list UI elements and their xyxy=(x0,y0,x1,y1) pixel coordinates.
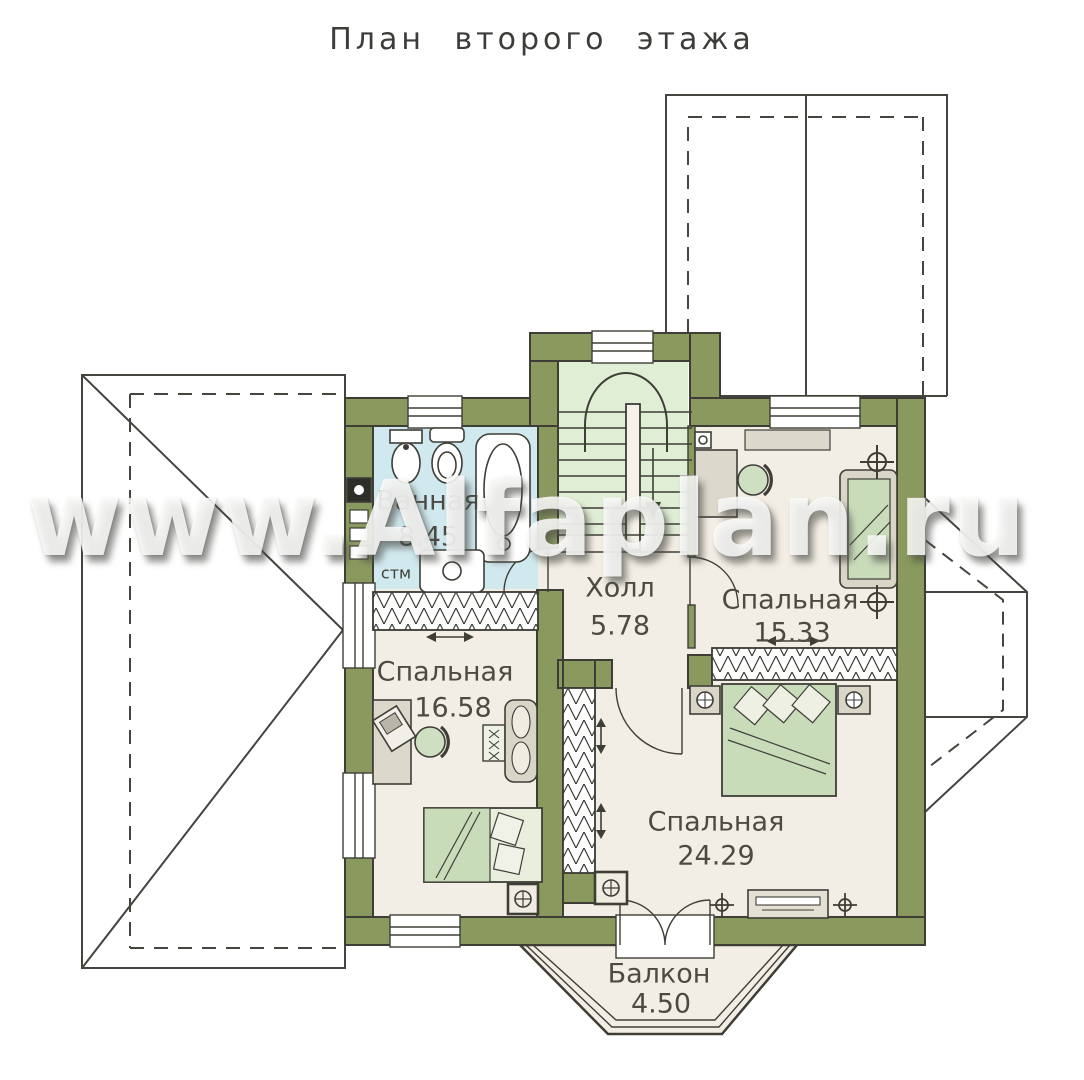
balcony-door-threshold xyxy=(616,915,714,958)
toilet xyxy=(430,428,464,483)
left-roof-outline xyxy=(82,375,345,968)
wardrobe-bathroom-south xyxy=(373,592,538,630)
right-bay-roof-outline xyxy=(925,498,1027,812)
nightstand-right xyxy=(838,686,870,714)
wardrobe-bedroom-big-top xyxy=(712,648,897,680)
stair-floor xyxy=(558,361,688,535)
room-area-hall: 5.78 xyxy=(590,613,650,640)
room-name-hall: Холл xyxy=(585,575,655,602)
right-wall xyxy=(897,398,925,945)
bathtub xyxy=(476,434,530,562)
wardrobe-bedroom-big-left xyxy=(563,688,595,873)
hall-bedroom-partition-lower xyxy=(688,605,695,648)
bed xyxy=(424,808,542,882)
window-stair-tower xyxy=(592,331,653,363)
hall-corner-block xyxy=(688,655,712,688)
chair xyxy=(415,727,445,757)
nightstand-left xyxy=(690,686,720,714)
window-left-lower xyxy=(343,773,375,858)
room-name-bathroom: Ванная xyxy=(376,488,479,515)
double-bed xyxy=(722,684,836,796)
bidet xyxy=(390,430,422,483)
desk xyxy=(695,450,737,517)
sofa-bed xyxy=(840,470,897,588)
room-area-bedroom-big: 24.29 xyxy=(677,843,754,870)
nightstand-speaker-2 xyxy=(595,872,627,904)
window-bottom-bedroom xyxy=(390,915,460,947)
window-top-right xyxy=(770,396,860,428)
room-name-bedroom-top: Спальная xyxy=(722,587,859,614)
radiator xyxy=(748,890,828,918)
room-area-bedroom-top: 15.33 xyxy=(753,620,830,647)
room-area-bathroom: 8.45 xyxy=(398,524,458,551)
room-area-bedroom-left: 16.58 xyxy=(414,695,491,722)
stair-spine xyxy=(626,404,640,550)
wardrobe-cap-top xyxy=(563,660,595,688)
washing-machine-label: стм xyxy=(381,564,411,583)
page-title: План второго этажа xyxy=(329,22,755,57)
electrical-panel-icons xyxy=(347,478,371,559)
window-left-upper xyxy=(343,583,375,668)
floor-plan-page: План второго этажа Ванная 8.45 Холл 5.78… xyxy=(0,0,1084,1080)
chair xyxy=(738,465,768,495)
room-name-bedroom-left: Спальная xyxy=(377,659,514,686)
wardrobe-cap-bottom xyxy=(563,873,595,903)
room-area-balcony: 4.50 xyxy=(631,991,691,1018)
side-table xyxy=(483,725,505,761)
window-top-left xyxy=(408,396,462,428)
bathroom-right-wall xyxy=(538,426,558,548)
room-name-bedroom-big: Спальная xyxy=(648,809,785,836)
socket-icon xyxy=(695,432,711,448)
floor-plan-drawing xyxy=(0,0,1084,1080)
room-name-balcony: Балкон xyxy=(608,961,711,988)
armchair xyxy=(505,700,537,782)
nightstand-speaker xyxy=(508,884,538,914)
washing-machine xyxy=(420,550,484,592)
shelf xyxy=(745,430,830,450)
